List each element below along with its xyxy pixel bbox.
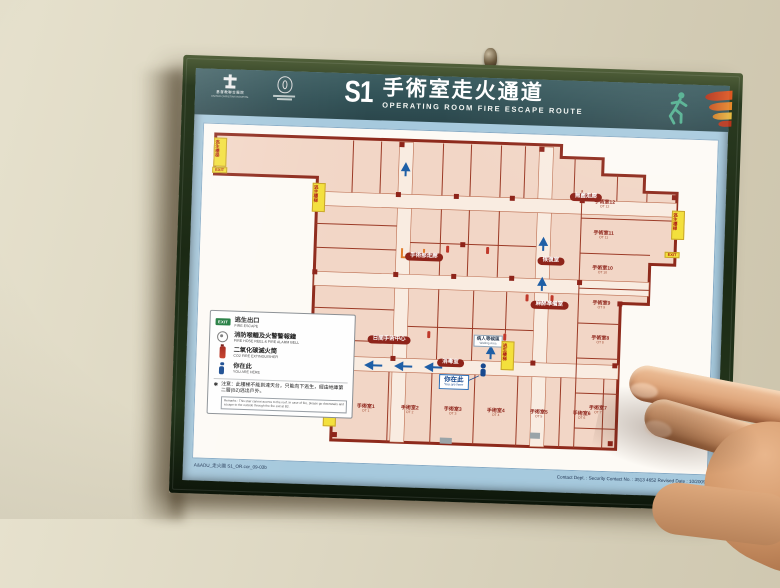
map-labels-layer: 手術部走廊無菌走廊恢復室麻醉準備室日間手術中心消毒室病人等候區Waiting A… <box>193 124 718 475</box>
legend-row-fire-escape: EXIT 逃生出口 FIRE ESCAPE <box>215 316 349 332</box>
legend-row-you-are-here: 你在此 YOU ARE HERE <box>214 362 348 379</box>
map-label: 手術部走廊 <box>405 252 443 261</box>
map-label: 手術室4OT 4 <box>487 409 505 418</box>
map-label: 手術室9OT 9 <box>592 301 610 310</box>
floor-plan-panel: 手術部走廊無菌走廊恢復室麻醉準備室日間手術中心消毒室病人等候區Waiting A… <box>192 123 719 476</box>
map-label: 手術室6OT 6 <box>573 412 591 421</box>
map-label: 手術室3OT 3 <box>444 407 462 416</box>
map-label: 日間手術中心 <box>367 335 410 344</box>
contact-info: Contact Dept. : Security Contact No. : 3… <box>557 474 706 484</box>
map-label: 手術室7OT 7 <box>589 406 607 415</box>
legend-en: YOU ARE HERE <box>233 370 260 375</box>
map-label: 手術室5OT 5 <box>530 410 548 419</box>
co2-extinguisher-icon <box>219 346 225 358</box>
map-label: 病人等候區Waiting Area <box>473 335 502 348</box>
escape-stair-tag: 逃生樓梯 <box>213 137 227 166</box>
note-english: Remarks : This stair cannot access to th… <box>221 396 347 413</box>
legend-box: EXIT 逃生出口 FIRE ESCAPE 消防喉轆及火警警報鐘 FIRE HO… <box>207 310 356 418</box>
map-label: 手術室10OT 10 <box>592 266 613 275</box>
you-are-here-box: 你在此 You are here <box>439 374 469 390</box>
running-man-icon <box>664 90 691 132</box>
hose-reel-icon <box>217 331 228 342</box>
legend-en: FIRE HOSE REEL & FIRE ALARM BELL <box>234 339 299 346</box>
exit-sign-icon: EXIT <box>216 318 230 325</box>
map-label: 恢復室 <box>537 257 564 266</box>
map-label: 消毒室 <box>437 359 464 368</box>
person-icon <box>218 362 225 375</box>
map-label: 手術室12OT 12 <box>594 200 615 209</box>
legend-en: CO2 FIRE EXTINGUISHER <box>233 354 278 360</box>
drawing-reference: A&ADU_走火圖 S1_OR.cor_09-03b <box>194 462 267 470</box>
fire-escape-poster: 基督教聯合醫院 UNITED CHRISTIAN HOSPITAL S1 手術室… <box>182 68 729 497</box>
exit-sign-tag: EXIT <box>664 252 679 259</box>
map-label: 手術室8OT 8 <box>591 336 609 345</box>
escape-stair-tag: 逃生樓梯 <box>671 211 685 240</box>
legend-en: FIRE ESCAPE <box>234 324 259 329</box>
escape-stair-tag: 逃生樓梯 <box>501 341 515 370</box>
exit-sign-tag: EXIT <box>212 167 227 174</box>
escape-stair-tag: 逃生樓梯 <box>312 183 326 212</box>
you-are-here-en: You are here <box>444 383 464 387</box>
note-asterisk: ✱ <box>213 382 218 394</box>
map-label: 手術室11OT 11 <box>593 231 614 240</box>
legend-note: ✱ 注意：此樓梯不能到達天台，只能向下逃生，經由地庫第二層(B2)逃出戶外。 <box>213 378 347 398</box>
legend-row-extinguisher: 二氧化碳滅火筒 CO2 FIRE EXTINGUISHER <box>214 346 348 362</box>
route-code: S1 <box>343 75 373 110</box>
flame-icon <box>698 87 729 132</box>
legend-row-hose-reel: 消防喉轆及火警警報鐘 FIRE HOSE REEL & FIRE ALARM B… <box>215 331 349 347</box>
picture-frame: 基督教聯合醫院 UNITED CHRISTIAN HOSPITAL S1 手術室… <box>169 55 743 511</box>
map-label: 手術室1OT 1 <box>357 404 375 413</box>
map-label: 麻醉準備室 <box>530 301 568 310</box>
map-label: 手術室2OT 2 <box>401 406 419 415</box>
